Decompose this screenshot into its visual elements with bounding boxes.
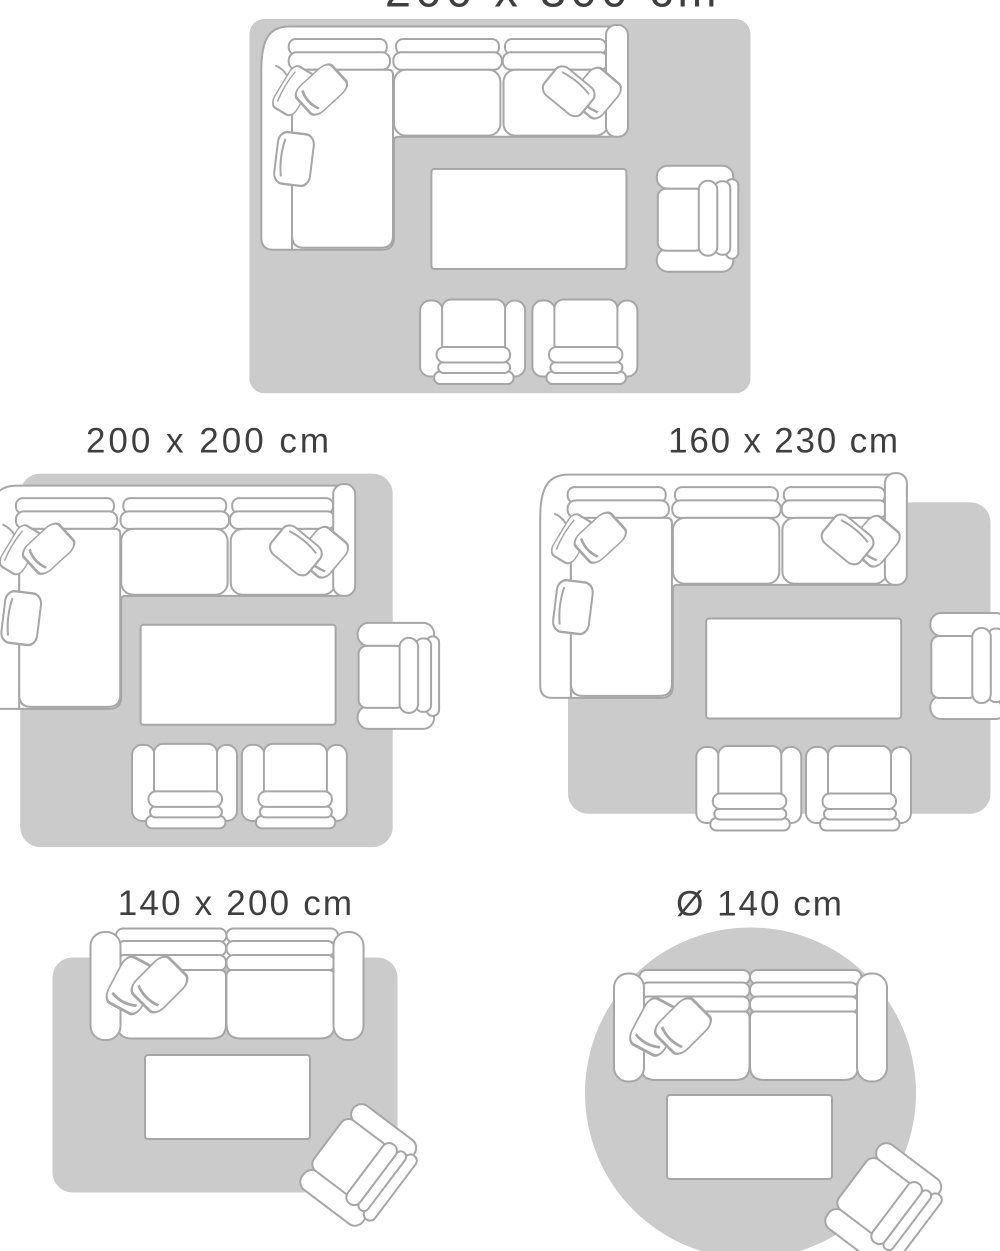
svg-text:200 x 300 cm: 200 x 300 cm	[385, 0, 721, 17]
svg-text:200 x 200 cm: 200 x 200 cm	[86, 422, 332, 461]
svg-text:160 x 230 cm: 160 x 230 cm	[668, 422, 900, 461]
svg-text:140 x 200 cm: 140 x 200 cm	[118, 884, 355, 923]
svg-text:Ø 140 cm: Ø 140 cm	[676, 885, 844, 924]
